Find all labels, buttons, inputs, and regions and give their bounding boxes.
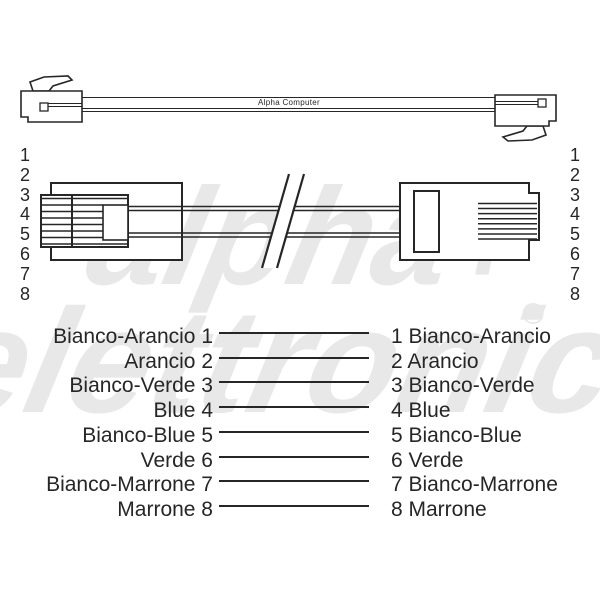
wiring-right-label: 8 Marrone [391,497,487,523]
middle-left-plug [41,183,182,260]
right-pin-number: 3 [564,185,586,205]
left-pin-number: 1 [14,145,36,165]
right-pin-number: 1 [564,145,586,165]
wiring-left-label: Bianco-Verde 3 [0,373,213,399]
left-pin-number: 7 [14,264,36,284]
wiring-right-label: 5 Bianco-Blue [391,423,522,449]
wiring-right-label: 3 Bianco-Verde [391,373,535,399]
wiring-left-label: Bianco-Blue 5 [0,423,213,449]
wiring-left-label: Verde 6 [0,448,213,474]
left-pin-number: 2 [14,165,36,185]
left-pin-number: 8 [14,284,36,304]
top-left-plug-icon [21,76,82,122]
right-pin-number: 6 [564,244,586,264]
right-pin-number: 8 [564,284,586,304]
top-right-plug-icon [495,95,556,141]
wiring-left-label: Bianco-Arancio 1 [0,324,213,350]
wiring-right-label: 7 Bianco-Marrone [391,472,558,498]
wiring-left-label: Bianco-Marrone 7 [0,472,213,498]
wiring-right-label: 6 Verde [391,448,463,474]
wiring-left-label: Blue 4 [0,398,213,424]
wiring-right-label: 2 Arancio [391,349,479,375]
wiring-right-label: 1 Bianco-Arancio [391,324,551,350]
wiring-left-label: Marrone 8 [0,497,213,523]
cable-break-icon [262,174,304,268]
left-pin-number: 4 [14,204,36,224]
cable-pinout-diagram: alpha+ elettronica ® Alpha Computer [0,0,600,600]
right-pin-number: 2 [564,165,586,185]
left-pin-number: 5 [14,224,36,244]
left-pin-number: 6 [14,244,36,264]
middle-right-plug [400,183,539,260]
right-pin-number: 7 [564,264,586,284]
left-pin-number: 3 [14,185,36,205]
wiring-left-label: Arancio 2 [0,349,213,375]
wiring-lines [219,333,369,506]
wiring-right-label: 4 Blue [391,398,451,424]
right-pin-number: 5 [564,224,586,244]
right-pin-number: 4 [564,204,586,224]
